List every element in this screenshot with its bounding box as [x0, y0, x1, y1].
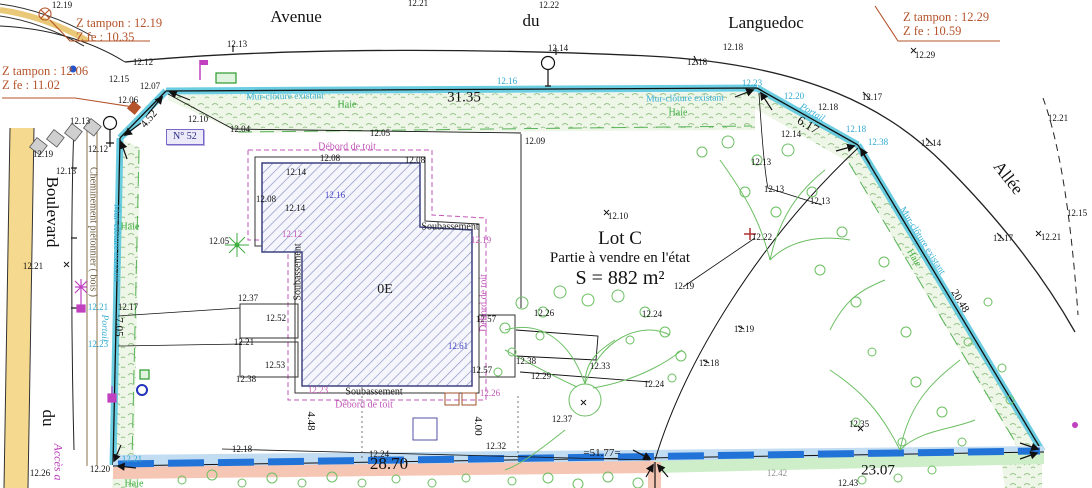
feature-label: Débord de toit: [318, 142, 376, 153]
feature-label: Mur-clôture existant: [646, 93, 724, 104]
spot-elevation: 12.20: [784, 91, 804, 101]
street-languedoc: Languedoc: [728, 13, 804, 33]
spot-elevation: 12.13: [751, 157, 771, 167]
spot-elevation: 12.24: [642, 309, 662, 319]
spot-elevation: 12.12: [282, 229, 302, 239]
spot-elevation: 12.13: [810, 196, 830, 206]
spot-elevation: 12.08: [405, 155, 425, 165]
dimension-label: 4.00: [472, 416, 484, 435]
z-note-line: Z tampon : 12.29: [903, 10, 989, 24]
spot-elevation: 12.21: [1048, 113, 1068, 123]
spot-elevation: 12.26: [480, 388, 500, 398]
spot-elevation: 12.29: [531, 371, 551, 381]
lot-text: Lot C Partie à vendre en l'état S = 882 …: [520, 228, 720, 290]
spot-elevation: 12.38: [868, 137, 888, 147]
feature-label: Soubassement: [421, 222, 478, 233]
spot-elevation: 12.18: [846, 124, 866, 134]
feature-label: Soubassement: [293, 243, 304, 300]
spot-elevation: 12.13: [227, 39, 247, 49]
floor-label: 0E: [377, 282, 393, 298]
spot-elevation: 12.08: [320, 153, 340, 163]
dimension-label: 31.35: [447, 90, 481, 107]
feature-label: Débord de toit: [335, 400, 393, 411]
spot-elevation: 12.15: [1067, 208, 1087, 218]
spot-elevation: 12.15: [109, 74, 129, 84]
spot-elevation: 12.13: [70, 116, 90, 126]
spot-elevation: 12.32: [486, 441, 506, 451]
dimension-label: 4.48: [305, 411, 317, 430]
spot-elevation: 12.21: [23, 261, 43, 271]
spot-elevation: 12.10: [188, 114, 208, 124]
spot-elevation: 12.14: [781, 129, 801, 139]
lot-desc: Partie à vendre en l'état: [520, 250, 720, 267]
spot-elevation: 12.16: [497, 76, 517, 86]
z-note-1: Z tampon : 12.19 Z fe : 10.35: [76, 16, 162, 44]
spot-elevation: 12.21: [234, 337, 254, 347]
feature-label: Soubassement: [345, 387, 402, 398]
spot-elevation: 12.19: [471, 235, 491, 245]
spot-elevation: 12.37: [552, 414, 572, 424]
z-note-line: Z tampon : 12.06: [2, 64, 88, 78]
spot-elevation: 12.57: [472, 365, 492, 375]
spot-elevation: 12.07: [140, 81, 160, 91]
spot-elevation: 12.18: [232, 444, 252, 454]
spot-elevation: 12.14: [548, 43, 568, 53]
spot-elevation: 12.17: [862, 92, 882, 102]
street-du-left: du: [38, 410, 58, 427]
spot-elevation: 12.19: [33, 149, 53, 159]
z-note-2: Z tampon : 12.06 Z fe : 11.02: [2, 64, 88, 92]
access-label: Accès a: [51, 444, 66, 481]
spot-elevation: 12.14: [285, 203, 305, 213]
spot-elevation: 12.16: [325, 190, 345, 200]
street-boulevard: Boulevard: [42, 177, 62, 248]
feature-label: Haie: [338, 100, 357, 111]
spot-elevation: 12.14: [286, 167, 306, 177]
spot-elevation: 12.42: [767, 468, 787, 478]
spot-elevation: 12.21: [88, 302, 108, 312]
spot-elevation: 12.18: [818, 102, 838, 112]
spot-elevation: 12.43: [838, 478, 858, 488]
spot-elevation: 12.52: [266, 313, 286, 323]
feature-label: Mur-clôture existant: [897, 205, 947, 276]
dimension-label: 4.52: [138, 108, 160, 130]
spot-elevation: 12.18: [723, 42, 743, 52]
lot-area: S = 882 m²: [520, 267, 720, 290]
spot-elevation: 12.24: [644, 379, 664, 389]
z-note-line: Z fe : 11.02: [2, 78, 88, 92]
spot-elevation: 12.04: [230, 124, 250, 134]
spot-elevation: 12.19: [734, 324, 754, 334]
feature-label: Cheminement piétonnier ( bois ): [88, 167, 99, 297]
spot-elevation: 12.38: [516, 356, 536, 366]
dimension-label: =51.77=: [583, 447, 620, 459]
spot-elevation: 12.22: [539, 0, 559, 10]
spot-elevation: 12.22: [752, 232, 772, 242]
feature-label: Haie: [121, 222, 140, 233]
spot-elevation: 12.35: [849, 419, 869, 429]
dimension-label: 23.07: [861, 463, 895, 480]
spot-elevation: 12.10: [608, 211, 628, 221]
spot-elevation: 12.17: [118, 302, 138, 312]
z-note-line: Z tampon : 12.19: [76, 16, 162, 30]
lot-name: Lot C: [520, 228, 720, 250]
spot-elevation: 12.12: [88, 144, 108, 154]
spot-elevation: 12.08: [256, 194, 276, 204]
spot-elevation: 12.12: [133, 57, 153, 67]
feature-label: Portail: [99, 315, 109, 342]
house-number-box: N° 52: [166, 129, 204, 145]
spot-elevation: 12.19: [52, 0, 72, 10]
spot-elevation: 12.06: [118, 95, 138, 105]
spot-elevation: 12.18: [699, 358, 719, 368]
dimension-label: 28.70: [370, 454, 408, 474]
spot-elevation: 12.26: [534, 308, 554, 318]
feature-label: Haie: [669, 108, 688, 119]
spot-elevation: 12.53: [265, 360, 285, 370]
feature-label: Mur-clôture existant: [111, 204, 121, 282]
spot-elevation: 12.37: [238, 293, 258, 303]
z-note-line: Z fe : 10.35: [76, 30, 162, 44]
spot-elevation: 12.05: [209, 236, 229, 246]
feature-label: Haie: [125, 479, 144, 488]
spot-elevation: 12.21: [1041, 232, 1061, 242]
dimension-label: 7.05: [113, 317, 125, 336]
spot-elevation: 12.13: [764, 184, 784, 194]
spot-elevation: 12.18: [687, 57, 707, 67]
spot-elevation: 12.09: [525, 136, 545, 146]
spot-elevation: 12.21: [408, 0, 428, 8]
spot-elevation: 12.61: [448, 341, 468, 351]
spot-elevation: 12.17: [993, 233, 1013, 243]
spot-elevation: 12.29: [915, 50, 935, 60]
feature-label: Haie: [904, 247, 923, 269]
spot-elevation: 12.33: [590, 361, 610, 371]
spot-elevation: 12.23: [742, 78, 762, 88]
z-note-3: Z tampon : 12.29 Z fe : 10.59: [903, 10, 989, 38]
spot-elevation: 12.20: [90, 464, 110, 474]
survey-plan: 12.1912.2112.2212.2912.1312.1412.1812.18…: [0, 0, 1092, 488]
spot-elevation: 12.26: [30, 468, 50, 478]
feature-label: Mur-clôture existant: [246, 91, 324, 102]
spot-elevation: 12.21: [122, 454, 142, 464]
spot-elevation: 12.23: [308, 385, 328, 395]
spot-elevation: 12.05: [370, 128, 390, 138]
street-avenue: Avenue: [270, 7, 322, 27]
dimension-label: 20.48: [948, 287, 971, 314]
spot-elevation: 12.14: [921, 138, 941, 148]
feature-label: Débord de toit: [479, 274, 490, 332]
street-du-top: du: [523, 11, 540, 31]
z-note-line: Z fe : 10.59: [903, 24, 989, 38]
spot-elevation: 12.38: [236, 374, 256, 384]
spot-elevation: 12.13: [56, 166, 76, 176]
